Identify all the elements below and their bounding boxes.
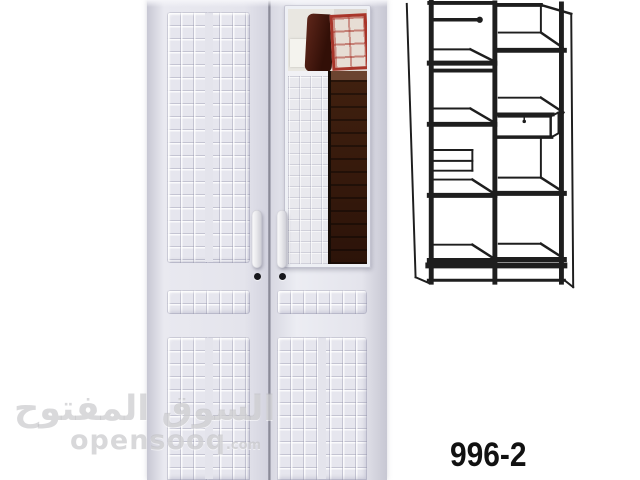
panel-divider xyxy=(205,338,213,479)
left-door-handle xyxy=(252,210,262,268)
right-door-mid-strip xyxy=(277,290,367,314)
photo-top-highlight xyxy=(147,0,387,7)
left-door-top-panel xyxy=(167,12,250,263)
door-gap xyxy=(268,0,271,480)
mirror-reflection-white-door xyxy=(288,71,328,264)
model-number: 996-2 xyxy=(450,436,527,475)
right-door-keyhole xyxy=(279,273,286,280)
mirror-glass xyxy=(288,9,367,264)
right-door-handle xyxy=(277,210,287,268)
mirror-reflection-brown-wardrobe xyxy=(328,71,367,264)
wardrobe-photo xyxy=(147,0,387,480)
wardrobe-interior-diagram xyxy=(396,0,582,296)
panel-divider xyxy=(318,338,326,479)
mirror xyxy=(284,5,371,268)
left-door-keyhole xyxy=(254,273,261,280)
panel-divider xyxy=(205,13,213,262)
product-listing-image: 996-2 السوق المفتوح opensooq.com xyxy=(0,0,640,480)
mirror-reflection-printed-box xyxy=(330,13,367,71)
left-door-bottom-panel xyxy=(167,337,250,480)
left-door-mid-strip xyxy=(167,290,250,314)
right-door-bottom-panel xyxy=(277,337,367,480)
